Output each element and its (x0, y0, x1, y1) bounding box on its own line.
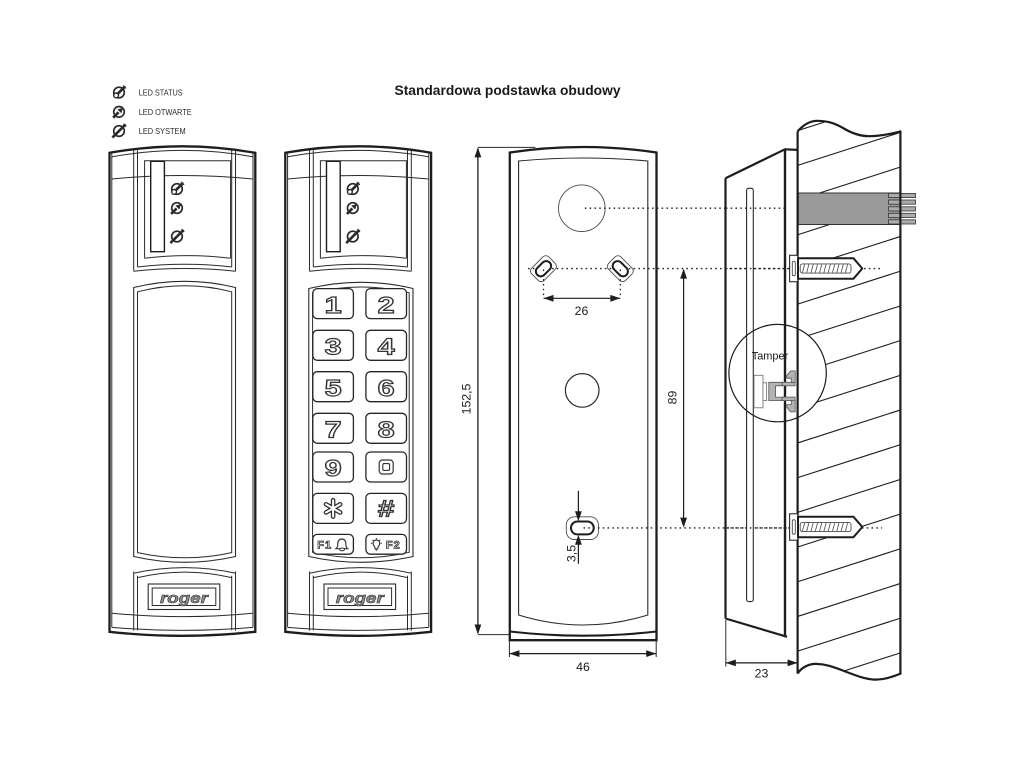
svg-text:2: 2 (378, 292, 395, 318)
svg-text:9: 9 (325, 455, 342, 481)
svg-text:LED OTWARTE: LED OTWARTE (139, 107, 192, 117)
svg-text:F2: F2 (386, 540, 401, 552)
svg-text:#: # (378, 496, 395, 522)
svg-text:LED STATUS: LED STATUS (139, 87, 183, 97)
svg-text:46: 46 (576, 660, 590, 674)
svg-text:Tamper: Tamper (752, 351, 789, 363)
svg-text:7: 7 (325, 417, 342, 443)
svg-text:6: 6 (378, 375, 395, 401)
svg-text:4: 4 (378, 334, 395, 360)
svg-text:1: 1 (325, 292, 342, 318)
svg-text:89: 89 (665, 391, 679, 405)
svg-text:152,5: 152,5 (459, 383, 473, 414)
svg-text:Standardowa podstawka obudowy: Standardowa podstawka obudowy (395, 82, 621, 98)
svg-text:3: 3 (325, 334, 342, 360)
svg-text:8: 8 (378, 417, 395, 443)
svg-text:LED SYSTEM: LED SYSTEM (139, 126, 186, 136)
svg-text:3,5: 3,5 (565, 545, 579, 562)
svg-text:23: 23 (755, 666, 769, 680)
svg-text:26: 26 (575, 304, 589, 318)
svg-text:F1: F1 (317, 540, 332, 552)
svg-text:5: 5 (325, 375, 342, 401)
